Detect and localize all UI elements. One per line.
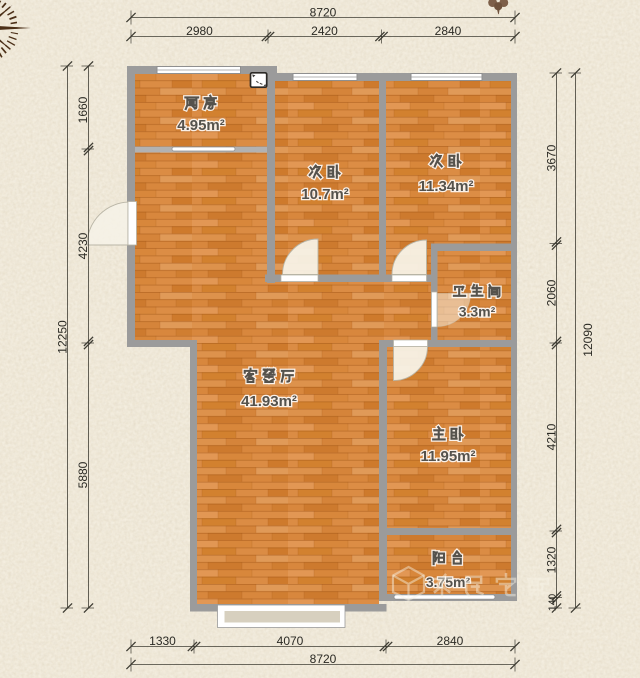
svg-text:4.95m²: 4.95m² [177,117,225,134]
svg-text:11.34m²: 11.34m² [418,178,473,195]
svg-text:2980: 2980 [186,24,213,38]
svg-text:2420: 2420 [311,24,338,38]
svg-text:1330: 1330 [149,634,176,648]
svg-text:1660: 1660 [76,96,90,123]
svg-text:12250: 12250 [56,320,70,354]
svg-text:12090: 12090 [581,323,595,357]
svg-text:3.3m²: 3.3m² [459,304,496,320]
svg-text:140: 140 [547,594,559,612]
svg-text:4210: 4210 [545,423,559,450]
svg-text:4070: 4070 [277,634,304,648]
svg-text:4230: 4230 [76,232,90,259]
svg-text:2840: 2840 [435,24,462,38]
svg-text:2060: 2060 [545,279,559,306]
svg-text:10.7m²: 10.7m² [301,186,349,203]
svg-text:2840: 2840 [437,634,464,648]
svg-text:1320: 1320 [545,546,559,573]
svg-text:3.75m²: 3.75m² [426,574,471,590]
svg-text:5880: 5880 [76,461,90,488]
svg-text:8720: 8720 [310,6,337,20]
svg-text:8720: 8720 [310,652,337,666]
svg-text:11.95m²: 11.95m² [420,448,475,465]
svg-text:3670: 3670 [545,144,559,171]
svg-text:41.93m²: 41.93m² [241,393,297,410]
